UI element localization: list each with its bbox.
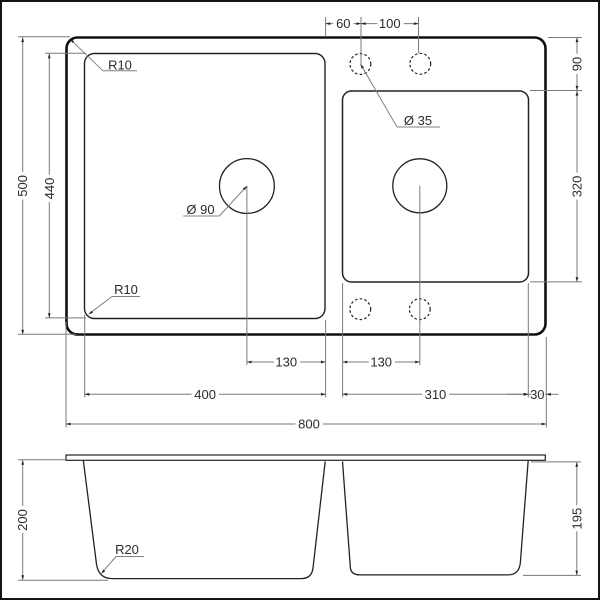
- svg-text:130: 130: [370, 355, 392, 370]
- svg-text:R10: R10: [108, 58, 132, 73]
- svg-text:90: 90: [570, 57, 585, 71]
- svg-text:500: 500: [15, 175, 30, 197]
- svg-text:440: 440: [42, 178, 57, 200]
- svg-text:195: 195: [569, 508, 584, 530]
- svg-text:200: 200: [15, 509, 30, 531]
- svg-text:310: 310: [425, 387, 447, 402]
- svg-text:130: 130: [275, 355, 297, 370]
- svg-text:60: 60: [336, 16, 350, 31]
- svg-text:800: 800: [298, 417, 320, 432]
- svg-text:R20: R20: [115, 542, 139, 557]
- svg-text:100: 100: [379, 16, 401, 31]
- svg-text:400: 400: [194, 387, 216, 402]
- svg-text:320: 320: [570, 176, 585, 198]
- svg-text:Ø 90: Ø 90: [186, 202, 214, 217]
- svg-text:R10: R10: [114, 282, 138, 297]
- svg-text:Ø 35: Ø 35: [404, 113, 432, 128]
- svg-text:30: 30: [530, 387, 544, 402]
